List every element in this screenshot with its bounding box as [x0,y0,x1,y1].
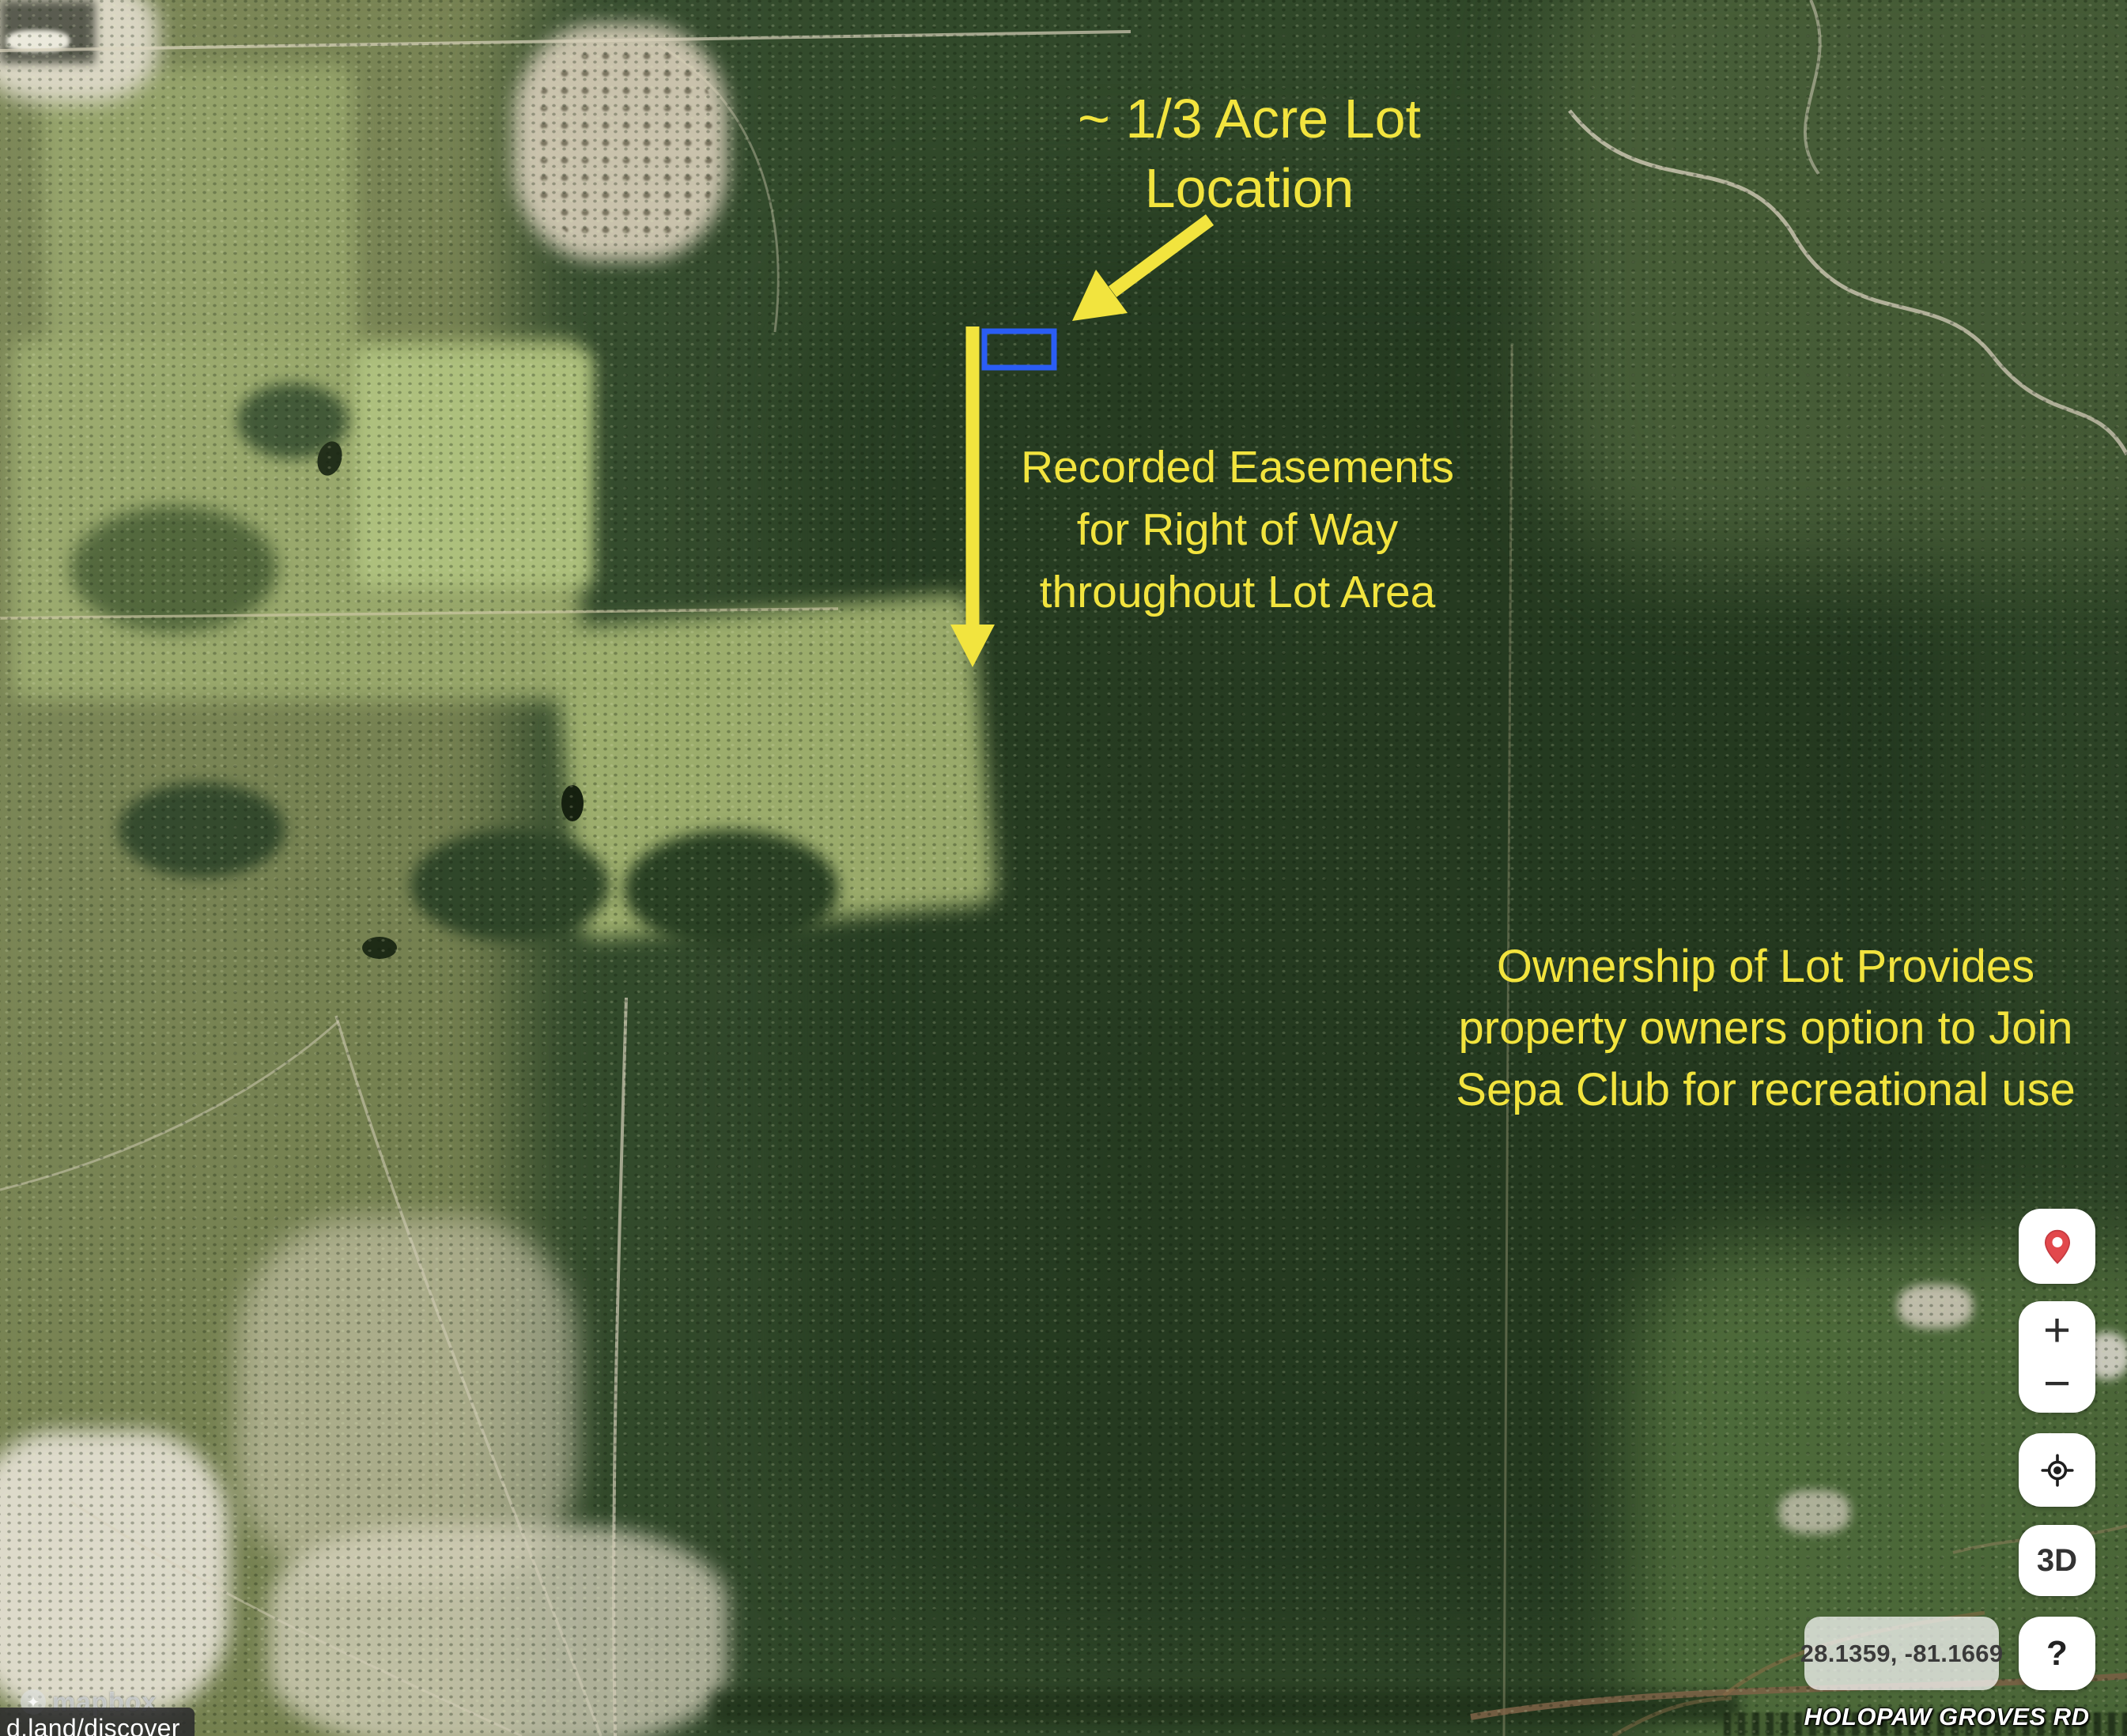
annotation-line: Location [1078,153,1421,223]
annotation-line: throughout Lot Area [1021,561,1454,624]
easement-arrow-head [950,625,995,667]
coordinates-pill[interactable]: 28.1359, -81.1669 [1804,1617,1999,1690]
marker-button[interactable] [2019,1209,2095,1284]
annotation-line: property owners option to Join [1456,998,2075,1059]
lot-outline-box [984,331,1054,368]
annotation-overlay [0,0,2127,1736]
road-label: HOLOPAW GROVES RD [1804,1703,2089,1731]
annotation-line: Ownership of Lot Provides [1456,936,2075,998]
coordinates-text: 28.1359, -81.1669 [1800,1640,2004,1668]
annotation-line: Sepa Club for recreational use [1456,1059,2075,1121]
annotation-lot-location: ~ 1/3 Acre Lot Location [1078,84,1421,223]
annotation-ownership: Ownership of Lot Provides property owner… [1456,936,2075,1121]
zoom-control: + − [2019,1301,2095,1413]
zoom-in-button[interactable]: + [2043,1307,2071,1354]
lot-arrow-shaft [1113,220,1210,292]
site-url-badge[interactable]: d.land/discover [0,1708,195,1736]
help-button[interactable]: ? [2019,1617,2095,1690]
annotation-line: for Right of Way [1021,499,1454,561]
annotation-line: Recorded Easements [1021,436,1454,499]
geolocate-icon [2038,1451,2076,1489]
site-url-text: d.land/discover [6,1714,180,1736]
map-view: ~ 1/3 Acre Lot Location Recorded Easemen… [0,0,2127,1736]
help-label: ? [2046,1634,2068,1674]
view-3d-button[interactable]: 3D [2019,1525,2095,1596]
view-3d-label: 3D [2037,1543,2077,1579]
annotation-easements: Recorded Easements for Right of Way thro… [1021,436,1454,624]
map-pin-icon [2037,1226,2078,1267]
lot-arrow-head [1072,270,1128,321]
annotation-line: ~ 1/3 Acre Lot [1078,84,1421,153]
zoom-out-button[interactable]: − [2043,1360,2071,1407]
geolocate-button[interactable] [2019,1433,2095,1507]
